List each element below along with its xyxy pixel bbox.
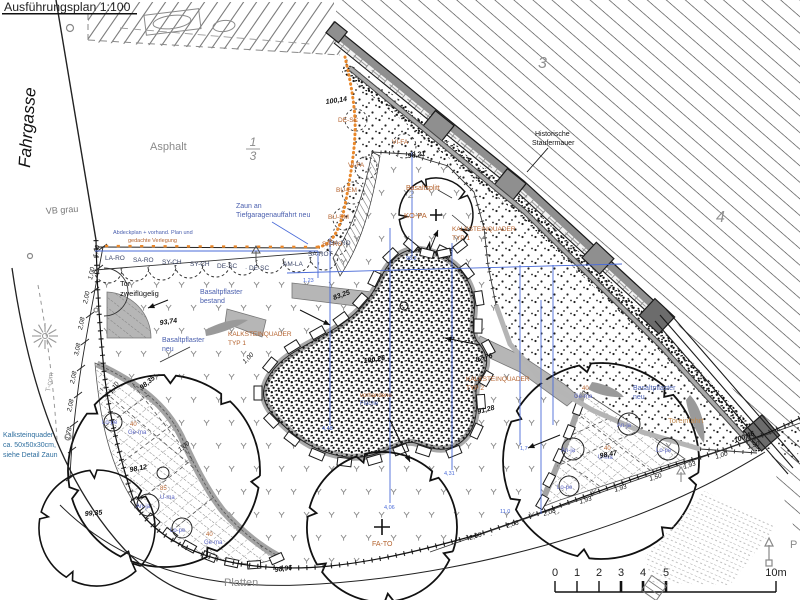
svg-text:Lo-pe: Lo-pe: [102, 420, 118, 426]
svg-text:4,48: 4,48: [322, 426, 333, 432]
svg-text:KALKSTEINQUADER: KALKSTEINQUADER: [466, 376, 530, 383]
svg-text:Basaltpflaster: Basaltpflaster: [162, 337, 205, 344]
svg-text:SA-RO: SA-RO: [322, 241, 343, 248]
svg-text:AM-LA: AM-LA: [283, 261, 304, 268]
svg-text:ca. 50x50x30cm,: ca. 50x50x30cm,: [3, 442, 56, 449]
svg-text:TYP 1: TYP 1: [228, 340, 246, 347]
svg-text:DE-SC: DE-SC: [217, 263, 238, 270]
svg-text:BU-EM: BU-EM: [336, 187, 357, 194]
svg-text:TYP 2: TYP 2: [466, 385, 484, 392]
svg-text:Lo-pe: Lo-pe: [557, 485, 573, 491]
svg-text:An-ja: An-ja: [617, 423, 632, 429]
svg-text:KO-PA: KO-PA: [404, 211, 427, 220]
svg-text:4: 4: [716, 209, 725, 226]
svg-text:bestand: bestand: [200, 298, 225, 305]
svg-text:Zaun an: Zaun an: [236, 203, 262, 210]
svg-text:Abdeckplan + vorhand. Plan und: Abdeckplan + vorhand. Plan und: [113, 230, 193, 236]
svg-text:1,7: 1,7: [520, 446, 528, 452]
svg-text:VI-FA: VI-FA: [348, 162, 365, 169]
svg-text:Tiefgaragenauffahrt neu: Tiefgaragenauffahrt neu: [236, 212, 310, 219]
svg-text:1: 1: [250, 135, 257, 149]
svg-text:vorhandene: vorhandene: [360, 393, 392, 399]
svg-text:Ausführungsplan 1:100: Ausführungsplan 1:100: [4, 0, 131, 14]
svg-text:0: 0: [552, 567, 558, 579]
svg-text:4,06: 4,06: [384, 505, 395, 511]
svg-text:SY-CH: SY-CH: [190, 261, 210, 268]
svg-text:An-ja: An-ja: [136, 504, 151, 510]
svg-text:U-ma: U-ma: [160, 495, 175, 501]
svg-text:KALKSTEINQUADER: KALKSTEINQUADER: [228, 331, 292, 338]
svg-text:Staufermauer: Staufermauer: [532, 140, 575, 147]
svg-text:gedachte Verlegung: gedachte Verlegung: [128, 238, 177, 244]
svg-text:P: P: [790, 539, 797, 551]
svg-text:Basaltsplitt: Basaltsplitt: [406, 185, 440, 192]
svg-text:40: 40: [206, 532, 213, 538]
svg-text:Asphalt: Asphalt: [150, 141, 187, 153]
svg-text:4: 4: [640, 567, 646, 579]
svg-text:An-ja: An-ja: [561, 448, 576, 454]
svg-text:11,0: 11,0: [500, 509, 510, 515]
svg-text:Basaltpflaster: Basaltpflaster: [200, 289, 243, 296]
svg-text:Ge-ma: Ge-ma: [204, 540, 223, 546]
svg-text:siehe Detail Zaun: siehe Detail Zaun: [3, 452, 58, 459]
svg-text:98,2: 98,2: [406, 256, 417, 262]
svg-text:1,23: 1,23: [303, 278, 314, 284]
svg-text:BU-EM: BU-EM: [328, 214, 349, 221]
svg-text:85: 85: [160, 486, 167, 492]
svg-text:SY-CH: SY-CH: [162, 259, 182, 266]
svg-text:TYP 1: TYP 1: [452, 235, 470, 242]
svg-text:Lo-pe: Lo-pe: [170, 528, 186, 534]
svg-text:SA-ROT: SA-ROT: [308, 251, 333, 258]
svg-text:FA-TO: FA-TO: [372, 541, 393, 548]
svg-text:VI-FA: VI-FA: [392, 139, 409, 146]
svg-text:1: 1: [574, 567, 580, 579]
svg-text:· DE-SC: · DE-SC: [245, 265, 270, 272]
svg-text:3: 3: [250, 149, 257, 163]
svg-text:Fläche: Fläche: [360, 401, 379, 407]
svg-text:Kalksteinquader: Kalksteinquader: [3, 432, 54, 439]
svg-text:KALKSTEINQUADER: KALKSTEINQUADER: [452, 226, 516, 233]
svg-text:Platten: Platten: [224, 577, 258, 589]
svg-text:Lo-pe: Lo-pe: [656, 448, 672, 454]
svg-text:Basaltpflaster: Basaltpflaster: [633, 385, 676, 392]
svg-text:Tor: Tor: [120, 279, 131, 288]
svg-text:zweiflügelig: zweiflügelig: [120, 289, 159, 298]
svg-text:Ge-ma: Ge-ma: [574, 394, 593, 400]
svg-text:3: 3: [538, 55, 547, 72]
svg-text:neu: neu: [162, 346, 174, 353]
svg-text:40: 40: [130, 422, 137, 428]
svg-text:LA-RO: LA-RO: [105, 255, 125, 262]
svg-text:2: 2: [596, 567, 602, 579]
svg-text:Toreinfahrt: Toreinfahrt: [668, 416, 704, 425]
svg-text:10m: 10m: [765, 567, 786, 579]
svg-text:40: 40: [582, 386, 589, 392]
svg-text:4,31: 4,31: [444, 471, 455, 477]
svg-text:3: 3: [618, 567, 624, 579]
svg-text:Ge-ma: Ge-ma: [128, 430, 147, 436]
svg-text:SA-RO: SA-RO: [133, 257, 154, 264]
svg-text:Historische: Historische: [535, 131, 570, 138]
svg-text:DE-SC: DE-SC: [338, 117, 359, 124]
svg-text:neu: neu: [633, 394, 645, 401]
